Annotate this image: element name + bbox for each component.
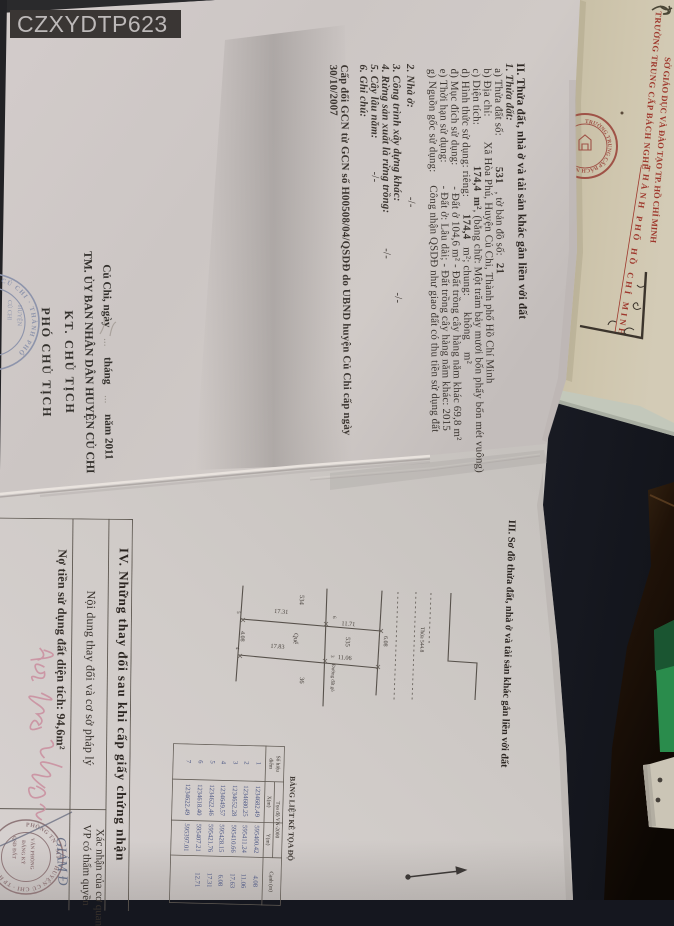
svg-text:Thửa 544.8: Thửa 544.8 <box>418 627 425 653</box>
svg-text:595410.66: 595410.66 <box>229 825 237 854</box>
svg-text:1234682.49: 1234682.49 <box>253 786 261 818</box>
svg-text:X(m): X(m) <box>265 796 272 808</box>
svg-text:595411.24: 595411.24 <box>240 825 248 854</box>
svg-text:11.06: 11.06 <box>337 654 351 662</box>
svg-text:Đường đất gò: Đường đất gò <box>329 664 335 692</box>
svg-text:6: 6 <box>196 760 203 764</box>
svg-text:6.08: 6.08 <box>216 874 223 886</box>
svg-text:1234680.25: 1234680.25 <box>241 785 249 817</box>
svg-text:11.06: 11.06 <box>239 874 246 889</box>
svg-text:17.31: 17.31 <box>205 873 212 888</box>
svg-text:1: 1 <box>254 762 261 765</box>
svg-text:595397.01: 595397.01 <box>182 823 190 851</box>
svg-text:595400.42: 595400.42 <box>252 825 260 853</box>
svg-text:17.63: 17.63 <box>228 873 235 889</box>
svg-text:1234652.28: 1234652.28 <box>230 785 238 817</box>
svg-text:1234622.49: 1234622.49 <box>183 784 191 816</box>
svg-text:1234622.46: 1234622.46 <box>207 784 215 816</box>
svg-text:17.83: 17.83 <box>270 643 285 651</box>
svg-text:17.31: 17.31 <box>274 608 289 616</box>
svg-text:4: 4 <box>219 761 226 765</box>
svg-text:Tọa độ VN-2000: Tọa độ VN-2000 <box>274 801 281 838</box>
svg-text:GIÁM Đ: GIÁM Đ <box>53 837 72 886</box>
svg-text:12.71: 12.71 <box>193 872 200 887</box>
svg-text:Y(m): Y(m) <box>264 834 271 846</box>
svg-text:534: 534 <box>298 595 305 606</box>
svg-text:2: 2 <box>243 761 250 764</box>
svg-text:3: 3 <box>231 761 238 765</box>
svg-text:5: 5 <box>208 760 215 764</box>
svg-text:4.08: 4.08 <box>239 631 245 642</box>
svg-text:11.71: 11.71 <box>341 620 355 628</box>
svg-text:36: 36 <box>298 677 305 684</box>
svg-text:Cạnh (m): Cạnh (m) <box>267 871 275 892</box>
svg-text:595428.15: 595428.15 <box>217 824 225 853</box>
svg-text:6.08: 6.08 <box>382 636 388 647</box>
svg-text:7: 7 <box>185 760 192 764</box>
svg-text:Quế: Quế <box>292 633 299 645</box>
svg-text:595407.21: 595407.21 <box>194 824 202 852</box>
svg-text:Số hiệu: Số hiệu <box>274 756 281 773</box>
svg-text:1234649.57: 1234649.57 <box>218 785 226 817</box>
svg-text:4.08: 4.08 <box>251 875 258 887</box>
svg-text:1234618.40: 1234618.40 <box>195 784 203 816</box>
svg-text:535: 535 <box>344 637 351 647</box>
svg-text:595421.76: 595421.76 <box>206 824 214 853</box>
